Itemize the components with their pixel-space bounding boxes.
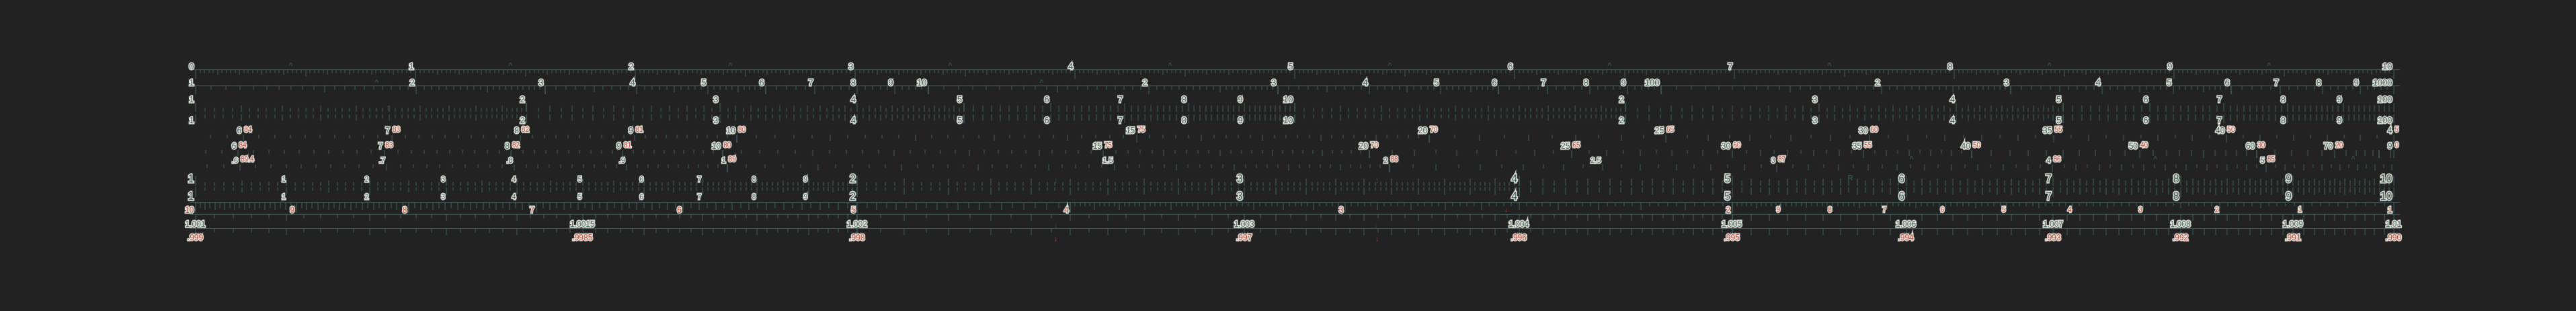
wood-background [0,0,2576,311]
slide-rule-photo: L K A B T S ST C D DI LL0 LL/0 L K A B T… [0,0,2576,311]
